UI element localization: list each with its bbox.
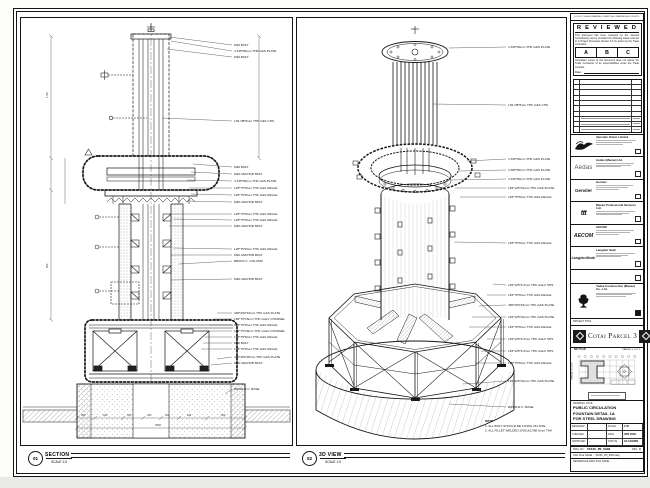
consultant-list: Venetian Orient Limited Aedas Aedas (Mac… — [571, 134, 643, 269]
section-view-number: 01 — [33, 456, 38, 461]
leader-label: 4 345*50mm THK G&S PLATE — [508, 45, 550, 49]
contractor-checkbox — [635, 310, 641, 316]
leader-label: 125*125*10mm THK G&S PLATE — [508, 379, 554, 383]
leader-label: 125*75*8mm THK G&S ANGLE — [234, 212, 277, 216]
leader-label: 4 345*50mm THK G&S PLATE — [234, 179, 276, 183]
leader-label: M20 BOLT — [234, 55, 249, 59]
consultant-row-langdon-seah: LangdonSeah Langdon Seah — [571, 246, 643, 269]
iso-view-number: 02 — [307, 456, 312, 461]
leader-label: 125*75*8mm THK G&S ANGLE — [234, 335, 277, 339]
section-view-panel: 1750 800 300 944 300 450 300 944 300 353… — [20, 17, 293, 446]
consultant-name: AECOM — [596, 226, 641, 229]
leader-label: M20 BOLT — [234, 341, 249, 345]
consultant-checkbox — [635, 216, 641, 222]
dimension-text: 3538 — [155, 423, 161, 427]
sheet-top-note: DO NOT SCALE DRAWING. VERIFY ALL DIMENSI… — [571, 14, 643, 21]
reviewed-stamp: R E V I E W E D This document has been r… — [573, 23, 642, 77]
leader-label: Ø2500 R.C. BASE — [508, 405, 533, 409]
status-option-c: C — [618, 48, 638, 57]
iso-view-name: 3D VIEW — [319, 452, 342, 458]
consultant-name: Langdon Seah — [596, 249, 641, 252]
leader-label: 125*75*8mm THK G&S ANGLE — [234, 193, 277, 197]
consultant-name: Macau Professional Services Ltd. — [596, 204, 641, 210]
dimension-text: 1750 — [45, 92, 49, 98]
consultant-name: Venetian Orient Limited — [596, 136, 641, 139]
aecom-logo: AECOM — [571, 225, 596, 247]
note-line: 2. ALL FILLET WELDED SHOULD BE 6mm THK. — [485, 429, 553, 433]
winged-lion-logo-icon — [571, 135, 596, 157]
leader-label: M20 ANCHOR BOLT — [234, 200, 263, 204]
key-plan-lot2-label: PARCEL 3, LOT 2 — [622, 349, 640, 351]
drawing-title-block: DRAWING TITLE: PUBLIC CIRCULATION FOUNTA… — [571, 400, 643, 423]
key-plan: KEY PLAN PARCEL 3, LOT 2 PARCEL 3, LOT 1 — [571, 347, 643, 400]
consultant-row-empty — [571, 269, 643, 283]
leader-label: 125*75*8mm THK G&S ANGLE — [234, 347, 277, 351]
leader-label: 125*75*8mm THK G&S ANGLE — [508, 361, 551, 365]
notes-title: NOTE: — [485, 419, 494, 423]
field-value — [588, 424, 607, 431]
field-value: APR 2009 — [623, 431, 643, 438]
reviewed-stamp-body1: This document has been reviewed by the r… — [575, 34, 639, 47]
consultant-row-mps: ttt Macau Professional Services Ltd. — [571, 201, 643, 224]
dimension-text: 944 — [103, 413, 108, 417]
dimension-text: 300 — [165, 413, 170, 417]
reviewed-stamp-title: R E V I E W E D — [575, 25, 639, 33]
consultant-checkbox — [635, 275, 641, 281]
iso-view-title: 02 3D VIEW SCALE 1:5 — [302, 451, 565, 466]
dimension-text: 944 — [187, 413, 192, 417]
leader-label: 125*125*10mm THK G&S PLATE — [508, 186, 554, 190]
project-title-banner: Cotai Parcel 3 — [571, 325, 643, 347]
leader-label: 125*75*8mm THK G&S ANGLE — [234, 323, 277, 327]
consultant-row-aecom: AECOM AECOM — [571, 224, 643, 247]
key-plan-lot1-label: PARCEL 3, LOT 1 — [571, 362, 573, 379]
field-label: DATE — [607, 431, 623, 438]
revision-table — [573, 79, 642, 133]
leader-label: 139.7Ø*8mm THK G&S CHS — [508, 103, 548, 107]
section-view-title: 01 SECTION SCALE 1:5 — [28, 451, 290, 466]
section-view-scale: SCALE 1:5 — [46, 458, 72, 464]
iso-view-panel: 4 345*50mm THK G&S PLATE 139.7Ø*8mm THK … — [296, 17, 567, 446]
field-value: 1:50 — [623, 424, 643, 431]
consultant-checkbox — [635, 261, 641, 267]
leader-label: 125*125*6.3mm THK GALV SHS — [508, 349, 553, 353]
leader-label: 4 345*50mm THK G&S PLATE — [234, 49, 276, 53]
iso-view-bubble: 02 — [302, 451, 317, 466]
note-line: 1. ALL BOLT SHOULD BE FIXING ON SITE. — [485, 424, 546, 428]
dimension-text: 300 — [221, 413, 226, 417]
consultant-row-aedas: Aedas Aedas (Macau) Ltd. — [571, 156, 643, 179]
stamp-date-line — [584, 70, 639, 74]
leader-label: 400*200*16mm THK G&S PLATE — [234, 311, 280, 315]
consultant-checkbox — [635, 149, 641, 155]
section-view-name: SECTION — [45, 452, 69, 458]
leader-label: M20 ANCHOR BOLT — [234, 253, 263, 257]
field-label: SCALE — [607, 424, 623, 431]
field-value: - — [588, 439, 607, 446]
leader-label: 125*75*8mm THK G&S ANGLE — [508, 293, 551, 297]
leader-label: 4 345*50mm THK G&S PLATE — [508, 157, 550, 161]
field-label: APPROVED — [571, 439, 588, 446]
reviewed-stamp-body2: Consultant review of this document does … — [575, 59, 639, 69]
cad-file-label: CAD FILE NAME : — [573, 454, 594, 457]
consultant-checkbox — [635, 171, 641, 177]
drawing-sheet-page: { "top_note": "DO NOT SCALE DRAWING. VER… — [0, 0, 650, 488]
section-view-drawing: 1750 800 300 944 300 450 300 944 300 353… — [21, 18, 292, 445]
contractor-logo-icon — [571, 284, 596, 318]
approval-fields-table: DESIGNED SCALE 1:50 CHECKED - DATE APR 2… — [571, 423, 643, 446]
section-view-bubble: 01 — [28, 451, 43, 466]
consultant-name: Gensler — [596, 181, 641, 184]
leader-label: 150*75*18mm THK GALV CHANNEL — [234, 329, 285, 333]
leader-label: 125*75*8mm THK G&S ANGLE — [508, 325, 551, 329]
revision-row — [574, 127, 641, 131]
leader-label: M20 ANCHOR BOLT — [234, 224, 263, 228]
cad-file-name: 51535_PD_5000.dwg — [596, 454, 620, 457]
leader-label: 450*200*16mm THK G&S PLATE — [508, 303, 554, 307]
leader-label: 450*450*20mm THK G&S PLATE — [234, 355, 280, 359]
drawing-sheet: 1750 800 300 944 300 450 300 944 300 353… — [13, 8, 648, 477]
leader-label: 139.7Ø*8mm THK G&S CHS — [234, 119, 274, 123]
reviewed-status-options: A B C — [575, 47, 639, 58]
rev-value: C — [639, 448, 641, 451]
banner-ornament-icon — [639, 330, 650, 343]
ttt-logo: ttt — [571, 202, 596, 224]
dwg-number: 51535_PD_5000 — [587, 448, 610, 451]
langdon-seah-logo: LangdonSeah — [571, 247, 596, 269]
consultant-row-gensler: Gensler Gensler — [571, 179, 643, 202]
status-option-a: A — [576, 48, 597, 57]
field-label: DESIGNED — [571, 424, 588, 431]
leader-label: M20 ANCHOR BOLT — [234, 361, 263, 365]
banner-ornament-icon — [573, 330, 586, 343]
title-block: DO NOT SCALE DRAWING. VERIFY ALL DIMENSI… — [570, 13, 644, 472]
iso-view-scale: SCALE 1:5 — [320, 458, 346, 464]
contractor-name: Yadea Construction (Macau) Co., Ltd. — [596, 285, 641, 291]
contractor-block: Yadea Construction (Macau) Co., Ltd. — [571, 283, 643, 318]
project-title: Cotai Parcel 3 — [588, 332, 637, 340]
stamp-date-label: Date : — [575, 70, 582, 74]
view-title-rule — [344, 453, 565, 458]
leader-label: 125*125*6.3mm THK GALV SHS — [508, 283, 553, 287]
field-value: - — [588, 431, 607, 438]
consultant-name: Aedas (Macau) Ltd. — [596, 159, 641, 162]
leader-label: 150*75*18mm THK GALV CHANNEL — [234, 317, 285, 321]
rev-label: REV — [632, 448, 637, 451]
view-title-rule — [71, 453, 290, 458]
drawing-title-line: FOR STEEL DRAWING — [573, 416, 641, 421]
project-title-label: PROJECT TITLE — [571, 318, 643, 325]
section-dimensions — [49, 34, 261, 430]
leader-label: Ø2500 R.C. BASE — [234, 387, 259, 391]
leader-label: 125*75*8mm THK G&S ANGLE — [234, 247, 277, 251]
leader-label: M20 ANCHOR BOLT — [234, 277, 263, 281]
leader-label: 4 345*50mm THK G&S PLATE — [508, 177, 550, 181]
consultant-checkbox — [635, 239, 641, 245]
reference-dwg-label: REFERENCE DWG FILE NAME : — [573, 460, 611, 463]
consultant-checkbox — [635, 194, 641, 200]
field-value: AS SHOWN — [623, 439, 643, 446]
gensler-logo: Gensler — [571, 180, 596, 202]
compass-ornament-icon — [618, 364, 632, 378]
dimension-text: 300 — [81, 413, 86, 417]
field-label: STATUS — [607, 439, 623, 446]
leader-label: Ø800 R.C. COLUMN — [234, 259, 263, 263]
iso-view-drawing: 4 345*50mm THK G&S PLATE 139.7Ø*8mm THK … — [297, 18, 566, 445]
dimension-text: 800 — [45, 263, 49, 268]
key-plan-label: KEY PLAN — [574, 349, 586, 351]
stamp-date-row: Date : — [575, 70, 639, 74]
dimension-text: 450 — [147, 413, 152, 417]
leader-label: 125*75*8mm THK G&S ANGLE — [508, 241, 551, 245]
status-option-b: B — [597, 48, 618, 57]
consultant-row-venetian: Venetian Orient Limited — [571, 134, 643, 157]
aedas-logo: Aedas — [571, 157, 596, 179]
leader-label: 125*75*8mm THK G&S ANGLE — [234, 186, 277, 190]
leader-label: 125*75*8mm THK G&S ANGLE — [508, 195, 551, 199]
leader-label: 4 395*50mm THK G&S PLATE — [508, 168, 550, 172]
section-geometry — [23, 23, 290, 440]
leader-label: M20 BOLT — [234, 165, 249, 169]
leader-label: 125*125*10mm THK G&S PLATE — [508, 315, 554, 319]
leader-label: M20 ANCHOR BOLT — [234, 172, 263, 176]
key-plan-caption-box — [588, 392, 626, 400]
reference-dwg-row: REFERENCE DWG FILE NAME : — [571, 458, 643, 464]
dwg-number-label: DWG NO : — [573, 448, 585, 451]
leader-label: 125*75*8mm THK G&S ANGLE — [234, 218, 277, 222]
leader-label: M20 BOLT — [234, 43, 249, 47]
dimension-text: 300 — [127, 413, 132, 417]
key-plan-map — [571, 353, 643, 391]
iso-geometry — [316, 26, 514, 439]
field-label: CHECKED — [571, 431, 588, 438]
leader-label: 125*125*6.3mm THK GALV SHS — [508, 337, 553, 341]
